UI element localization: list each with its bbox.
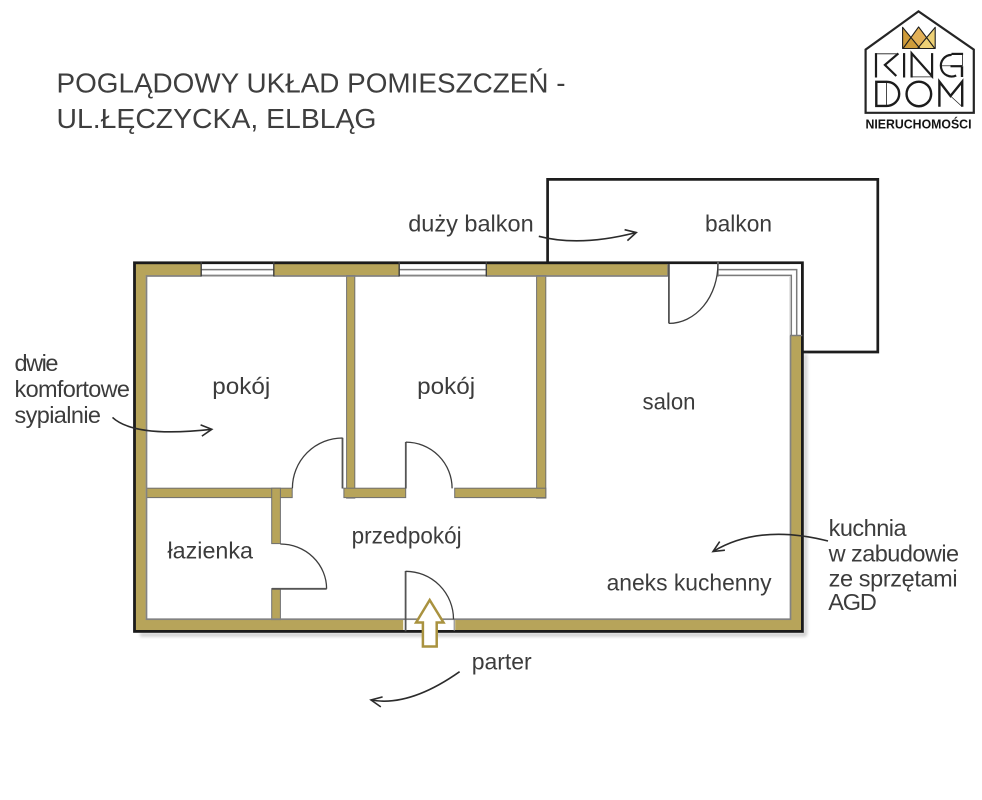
svg-text:ze sprzętami: ze sprzętami xyxy=(829,566,958,592)
svg-text:balkon: balkon xyxy=(705,211,772,237)
svg-text:pokój: pokój xyxy=(212,373,270,399)
svg-text:komfortowe: komfortowe xyxy=(15,376,131,402)
svg-text:POGLĄDOWY UKŁAD POMIESZCZEŃ -: POGLĄDOWY UKŁAD POMIESZCZEŃ - xyxy=(57,67,566,98)
svg-text:w zabudowie: w zabudowie xyxy=(828,541,960,567)
svg-text:pokój: pokój xyxy=(417,373,475,399)
svg-text:NIERUCHOMOŚCI: NIERUCHOMOŚCI xyxy=(866,116,972,131)
svg-text:UL.ŁĘCZYCKA, ELBLĄG: UL.ŁĘCZYCKA, ELBLĄG xyxy=(57,103,377,134)
svg-text:sypialnie: sypialnie xyxy=(15,402,102,428)
svg-text:duży balkon: duży balkon xyxy=(408,211,534,237)
svg-text:parter: parter xyxy=(472,649,532,675)
svg-text:łazienka: łazienka xyxy=(168,538,254,564)
svg-text:przedpokój: przedpokój xyxy=(352,523,462,549)
svg-text:AGD: AGD xyxy=(828,589,877,615)
svg-text:salon: salon xyxy=(643,389,696,415)
svg-text:aneks kuchenny: aneks kuchenny xyxy=(607,570,772,596)
svg-text:kuchnia: kuchnia xyxy=(829,515,908,541)
svg-text:dwie: dwie xyxy=(15,350,59,376)
